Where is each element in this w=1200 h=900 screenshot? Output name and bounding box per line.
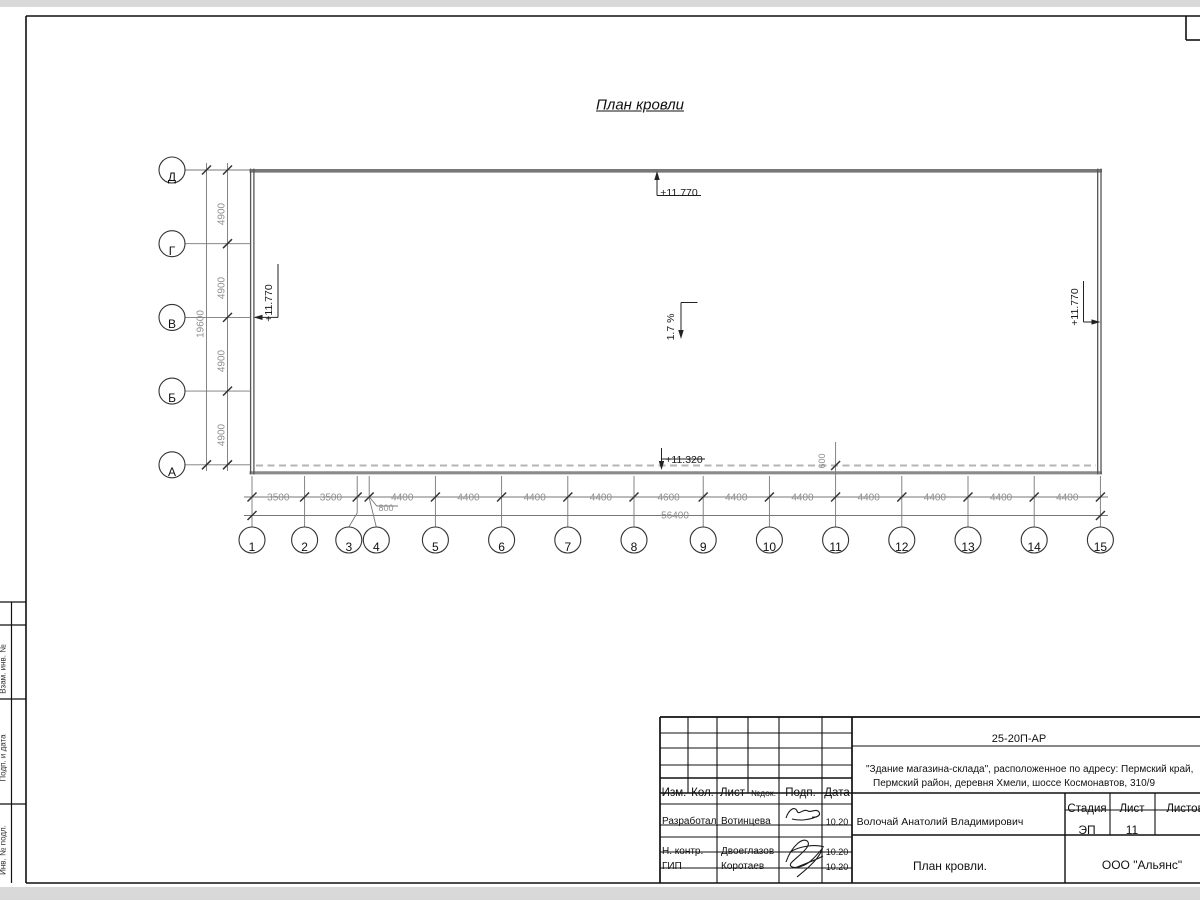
tb-doc-title: План кровли.: [913, 859, 987, 873]
axis-col-10: 10: [763, 540, 776, 554]
axis-row-b: Б: [168, 391, 176, 405]
paper: План кровли Д Г В Б А 1 2 3 4 5 6 7 8 9 …: [0, 7, 1200, 887]
dim-parapet-600: 600: [817, 453, 827, 468]
axis-col-12: 12: [895, 540, 908, 554]
dim-seg-10-11: 4400: [791, 493, 813, 504]
axis-col-15: 15: [1094, 540, 1107, 554]
dim-seg-3-4: 800: [378, 503, 393, 513]
dim-row-d-g: 4900: [216, 203, 227, 225]
dim-total-left: 19600: [195, 310, 206, 338]
dim-row-b-a: 4900: [216, 424, 227, 446]
elev-top-label: +11.770: [660, 187, 697, 199]
dim-seg-12-13: 4400: [924, 493, 946, 504]
elev-left-label: +11.770: [263, 284, 275, 321]
dim-seg-14-15: 4400: [1056, 493, 1078, 504]
elevation-markers: [254, 171, 1101, 470]
signature-votintseva: [786, 809, 820, 820]
tb-date-2: 10.20: [826, 847, 849, 857]
tb-header-list: Лист: [720, 787, 745, 799]
tb-stage-label: Стадия: [1067, 803, 1106, 815]
tb-date-1: 10.20: [826, 817, 849, 827]
sheet-frame: [26, 16, 1200, 883]
signatures: [786, 809, 824, 877]
dim-row-v-b: 4900: [216, 350, 227, 372]
dim-row-g-v: 4900: [216, 276, 227, 298]
side-stamp-podp: Подп. и дата: [0, 734, 8, 781]
axis-row-d: Д: [168, 170, 176, 184]
tb-name-dvoeglazov: Двоеглазов: [721, 846, 774, 857]
tb-header-izm: Изм.: [662, 787, 687, 799]
axis-col-1: 1: [249, 540, 256, 554]
tb-author: Волочай Анатолий Владимирович: [857, 816, 1024, 828]
dim-seg-9-10: 4400: [725, 493, 747, 504]
tb-sheets-label: Листов: [1166, 803, 1200, 815]
dim-total-bottom: 56400: [661, 511, 689, 522]
tb-header-ndok: №док.: [751, 788, 776, 798]
dim-seg-8-9: 4600: [657, 493, 679, 504]
tb-name-korotaev: Коротаев: [721, 861, 764, 872]
arrow-down-icon: [678, 330, 683, 339]
axis-col-3: 3: [345, 540, 352, 554]
axis-col-7: 7: [564, 540, 571, 554]
tb-header-data: Дата: [824, 787, 849, 799]
axis-col-5: 5: [432, 540, 439, 554]
tb-date-3: 10.20: [826, 862, 849, 872]
side-stamp-inv: Инв. № подл.: [0, 825, 8, 875]
axis-col-4: 4: [373, 540, 380, 554]
axis-col-6: 6: [498, 540, 505, 554]
tb-role-gip: ГИП: [662, 861, 682, 872]
dim-seg-11-12: 4400: [858, 493, 880, 504]
dim-seg-1-2: 3500: [267, 493, 289, 504]
tb-stage-value: ЭП: [1078, 823, 1095, 837]
axis-col-8: 8: [631, 540, 638, 554]
tb-role-razrabotal: Разработал: [662, 816, 716, 827]
slope-label: 1.7 %: [665, 314, 677, 341]
tb-header-kol: Кол.: [691, 787, 714, 799]
dim-seg-5-6: 4400: [457, 493, 479, 504]
dim-seg-13-14: 4400: [990, 493, 1012, 504]
side-stamp-vzam: Взам. инв. №: [0, 644, 8, 694]
signature-gip-nkontr: [786, 840, 824, 877]
dim-seg-7-8: 4400: [590, 493, 612, 504]
tb-company: ООО "Альянс": [1102, 858, 1182, 872]
slope-arrow: [678, 303, 697, 340]
drawing-linework: [0, 7, 1200, 887]
axis-bubbles: [159, 157, 1113, 553]
axis-col-13: 13: [961, 540, 974, 554]
axis-col-11: 11: [829, 540, 841, 554]
dim-seg-4-5: 4400: [391, 493, 413, 504]
tb-sheet-label: Лист: [1120, 803, 1145, 815]
elev-low-label: +11.320: [665, 454, 702, 466]
axis-col-9: 9: [700, 540, 707, 554]
drawing-sheet: План кровли Д Г В Б А 1 2 3 4 5 6 7 8 9 …: [0, 0, 1200, 900]
tb-doc-number: 25-20П-АР: [992, 733, 1046, 745]
dim-seg-6-7: 4400: [524, 493, 546, 504]
tb-header-podp: Подп.: [785, 787, 816, 799]
axis-row-a: А: [168, 465, 176, 479]
tb-project-line2: Пермский район, деревня Хмели, шоссе Кос…: [873, 778, 1155, 789]
tb-sheet-value: 11: [1126, 823, 1138, 837]
dim-seg-2-3: 3500: [320, 493, 342, 504]
tb-name-votintseva: Вотинцева: [721, 816, 771, 827]
elev-right-label: +11.770: [1069, 288, 1081, 325]
tb-project-line1: "Здание магазина-склада", расположенное …: [866, 764, 1193, 775]
axis-col-14: 14: [1028, 540, 1041, 554]
axis-row-v: В: [168, 317, 176, 331]
plan-title: План кровли: [596, 97, 684, 114]
arrow-left-icon: [254, 315, 263, 320]
arrow-right-icon: [1092, 319, 1101, 324]
tb-role-nkontr: Н. контр.: [662, 846, 703, 857]
axis-col-2: 2: [301, 540, 308, 554]
axis-row-g: Г: [169, 244, 176, 258]
